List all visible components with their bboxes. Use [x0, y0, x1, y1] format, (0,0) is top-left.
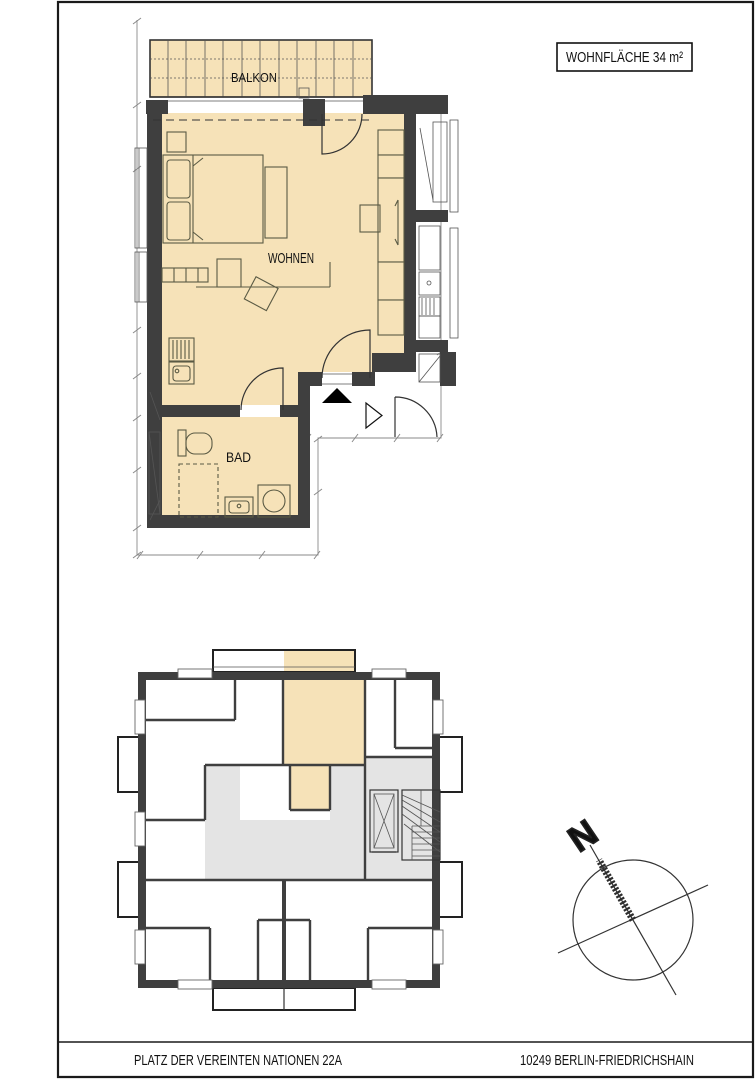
footer: PLATZ DER VEREINTEN NATIONEN 22A 10249 B…: [134, 1053, 694, 1069]
apartment-plan: BALKON: [133, 18, 458, 559]
city-text: 10249 BERLIN-FRIEDRICHSHAIN: [520, 1053, 694, 1069]
north-label: N: [560, 811, 604, 860]
room-fills: [160, 113, 404, 515]
balkon-label: BALKON: [231, 70, 277, 85]
area-label-text: WOHNFLÄCHE 34 m²: [566, 49, 683, 66]
overview-bottom-balcony: [213, 988, 355, 1010]
wohnen-label: WOHNEN: [268, 250, 314, 267]
bathroom-floor: [162, 417, 298, 515]
overview-top-balcony: [213, 650, 355, 672]
door-swing-symbol: [366, 403, 382, 428]
balcony: BALKON: [150, 40, 372, 101]
bad-label: BAD: [226, 449, 251, 465]
address-text: PLATZ DER VEREINTEN NATIONEN 22A: [134, 1053, 342, 1069]
hall-door-arc: [395, 397, 437, 437]
neighbour-sink: [419, 272, 440, 295]
compass: N: [558, 811, 708, 995]
overview-plan: [118, 650, 462, 1010]
floorplan-canvas: WOHNFLÄCHE 34 m² BALKON: [0, 0, 755, 1080]
floorplan-page: WOHNFLÄCHE 34 m² BALKON: [0, 0, 755, 1080]
neighbour-stove: [419, 297, 440, 316]
area-label-box: WOHNFLÄCHE 34 m²: [557, 43, 692, 71]
entrance-arrow: [322, 388, 352, 403]
entrance: [322, 374, 437, 437]
